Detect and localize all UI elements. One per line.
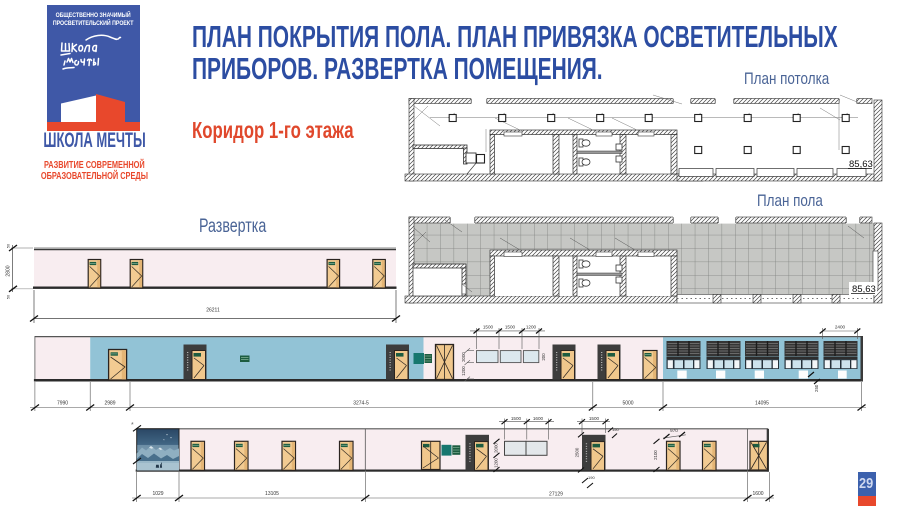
svg-text:50: 50 — [7, 244, 11, 248]
svg-text:2000: 2000 — [494, 443, 499, 453]
svg-text:2100: 2100 — [653, 450, 658, 460]
svg-text:2800: 2800 — [6, 265, 12, 276]
svg-text:1500: 1500 — [505, 325, 516, 330]
svg-text:26211: 26211 — [206, 308, 220, 314]
svg-text:2000: 2000 — [461, 352, 466, 362]
svg-text:7990: 7990 — [57, 401, 68, 407]
svg-text:50: 50 — [7, 295, 11, 299]
svg-text:27129: 27129 — [549, 492, 563, 498]
svg-text:13105: 13105 — [265, 491, 279, 497]
svg-text:970: 970 — [670, 428, 678, 433]
svg-text:3274-5: 3274-5 — [353, 401, 369, 407]
svg-text:5000: 5000 — [622, 401, 633, 407]
svg-text:*: * — [131, 422, 134, 429]
svg-text:1200: 1200 — [526, 325, 537, 330]
svg-text:1200: 1200 — [461, 366, 466, 376]
svg-text:2500: 2500 — [575, 447, 580, 457]
svg-text:2400: 2400 — [835, 325, 846, 330]
svg-text:1600: 1600 — [533, 416, 544, 421]
svg-text:1200: 1200 — [494, 458, 499, 468]
svg-text:190: 190 — [588, 475, 595, 480]
svg-text:1500: 1500 — [511, 416, 522, 421]
svg-text:14095: 14095 — [755, 401, 769, 407]
svg-text:250: 250 — [814, 384, 819, 392]
svg-text:2989: 2989 — [104, 401, 115, 407]
svg-text:1029: 1029 — [152, 491, 163, 497]
svg-text:1500: 1500 — [589, 416, 600, 421]
svg-text:200: 200 — [541, 353, 546, 361]
svg-text:1600: 1600 — [752, 491, 763, 497]
svg-text:1500: 1500 — [483, 325, 494, 330]
